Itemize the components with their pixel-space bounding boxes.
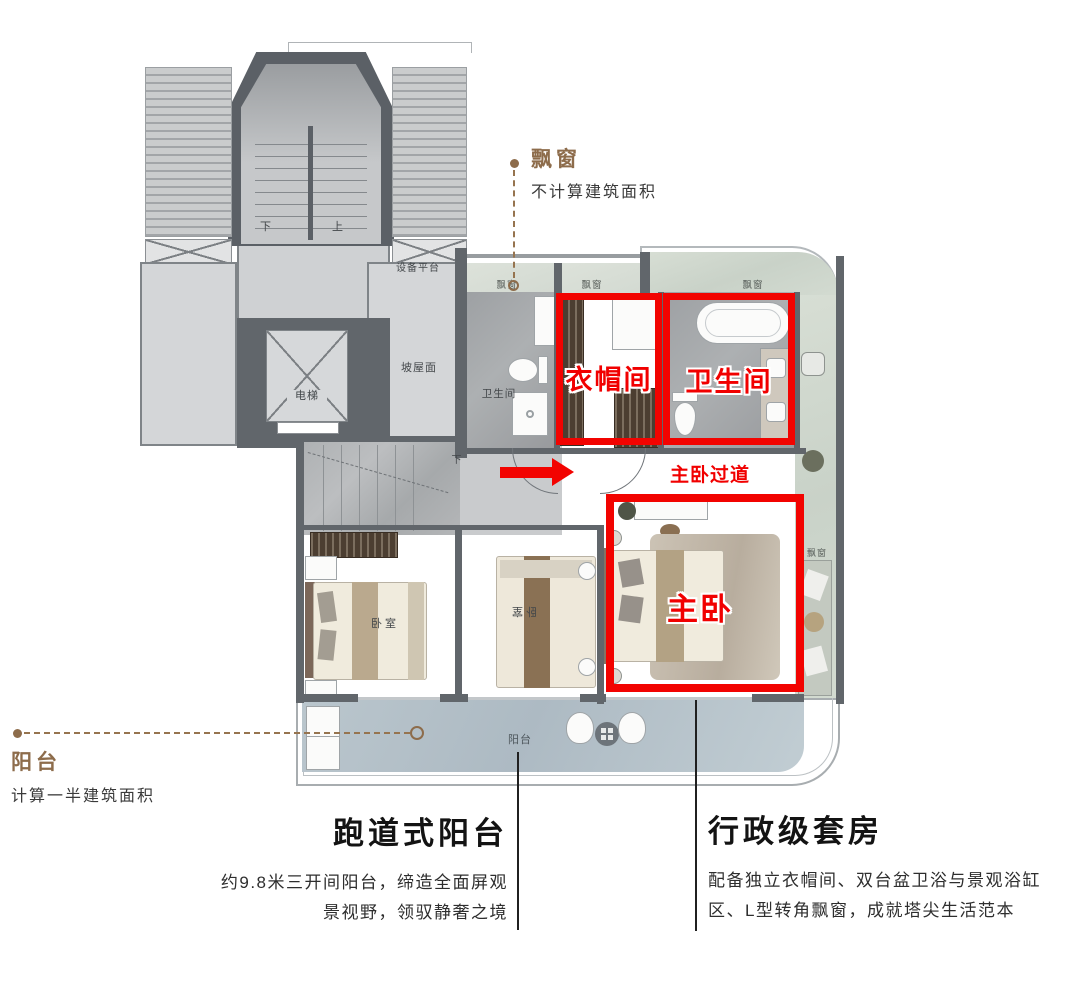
floor-plan-page: 下 上 设备平台 坡屋面 电梯	[0, 0, 1080, 998]
cloakroom-label: 衣帽间	[558, 358, 660, 397]
feature-executive-suite: 行政级套房 配备独立衣帽间、双台盆卫浴与景观浴缸 区、L型转角飘窗，成就塔尖生活…	[708, 812, 1048, 926]
shower-drain	[526, 410, 534, 418]
bay-callout-line	[513, 170, 515, 278]
left-room	[140, 262, 237, 446]
feature-executive-suite-title: 行政级套房	[708, 812, 1048, 852]
inner-stair-treads	[306, 445, 418, 531]
balcony-cabinet-line	[306, 736, 340, 737]
wall-bedroom-top	[302, 525, 604, 530]
wall-top-thin	[463, 254, 643, 258]
toilet-small-bowl	[508, 358, 538, 382]
wall-bottom-seg-1	[302, 694, 358, 702]
feature-runway-balcony-line-2: 景视野，领驭静奢之境	[188, 898, 508, 928]
stair-tower-bracket	[288, 42, 472, 53]
small-bathroom-label: 卫生间	[476, 388, 522, 401]
leader-line-balcony	[517, 752, 519, 930]
wall-bottom-seg-2	[440, 694, 468, 702]
stair-down-label: 下	[258, 221, 274, 234]
bedroom-left-label: 卧室	[366, 618, 404, 631]
wall-right-outer	[836, 256, 844, 704]
slider-door-1	[358, 697, 440, 700]
vanity-small	[534, 296, 556, 346]
wall-unit-left	[296, 441, 304, 703]
balcony-callout-subtitle: 计算一半建筑面积	[11, 782, 155, 806]
door-gap-3	[352, 526, 396, 530]
wall-bottom-seg-3	[580, 694, 606, 702]
balcony-callout-line	[24, 732, 410, 734]
door-gap-2	[668, 449, 702, 454]
bay-window-label-2: 飘窗	[572, 280, 612, 291]
corridor-arrow	[500, 467, 552, 478]
feature-executive-suite-line-2: 区、L型转角飘窗，成就塔尖生活范本	[708, 896, 1048, 926]
roof-hatch-left	[145, 67, 232, 237]
pouf-1	[578, 562, 596, 580]
corridor-arrow-head	[552, 458, 574, 486]
equipment-platform-label: 设备平台	[378, 263, 458, 275]
sloped-roof-label: 坡屋面	[390, 362, 448, 375]
feature-runway-balcony: 跑道式阳台 约9.8米三开间阳台，缔造全面屏观 景视野，领驭静奢之境	[188, 814, 508, 928]
balcony-callout-dot	[13, 729, 22, 738]
balcony-callout-ring	[410, 726, 424, 740]
toilet-small-tank	[538, 356, 548, 384]
wall-bedroom-divider-1	[455, 530, 462, 702]
slider-door-2	[468, 697, 580, 700]
bedroom-mid-label: 卧室	[504, 604, 542, 617]
corridor-label: 主卧过道	[650, 460, 770, 487]
bay-window-label-4: 飘窗	[799, 548, 835, 559]
master-bathroom-label: 卫生间	[665, 360, 793, 399]
master-bedroom-label: 主卧	[640, 584, 760, 629]
balcony-chair-1	[566, 712, 594, 744]
balcony-callout-title: 阳台	[11, 746, 61, 776]
slider-door-3	[606, 697, 752, 700]
wardrobe-left-bedroom	[310, 532, 398, 558]
bay-shelf-item-2	[804, 612, 824, 632]
bay-callout-ring	[508, 280, 519, 291]
stair-spine-wall	[308, 126, 313, 240]
bay-callout-subtitle: 不计算建筑面积	[531, 178, 657, 202]
door-gap-4	[500, 526, 544, 530]
balcony-chair-2	[618, 712, 646, 744]
bay-callout-dot	[510, 159, 519, 168]
wall-bedroom-divider-2	[597, 528, 604, 704]
feature-executive-suite-line-1: 配备独立衣帽间、双台盆卫浴与景观浴缸	[708, 866, 1048, 896]
balcony-cabinet	[306, 706, 340, 770]
feature-runway-balcony-line-1: 约9.8米三开间阳台，缔造全面屏观	[188, 868, 508, 898]
inner-stair-down-label: 下	[450, 455, 464, 467]
nightstand-1	[305, 556, 337, 580]
leader-line-suite	[695, 700, 697, 931]
roof-hatch-right	[392, 67, 467, 237]
wall-bay-mullion-2	[640, 252, 650, 298]
bay-window-label-3: 飘窗	[733, 280, 773, 291]
wall-bottom-seg-4	[752, 694, 804, 702]
elevator-label: 电梯	[287, 390, 327, 403]
bay-window-label-1: 飘窗	[487, 280, 527, 291]
balcony-floor	[302, 700, 804, 772]
bed-left-pillow-2	[317, 629, 336, 661]
wall-stair-top	[296, 436, 466, 442]
feature-runway-balcony-title: 跑道式阳台	[188, 814, 508, 854]
elevator-car	[266, 330, 348, 422]
bay-ornament	[801, 352, 825, 376]
balcony-label: 阳台	[504, 734, 536, 747]
bed-left-throw	[408, 582, 424, 680]
balcony-table-top	[601, 728, 613, 740]
wall-unit-topleft	[455, 248, 467, 458]
pouf-2	[578, 658, 596, 676]
bay-callout-title: 飘窗	[531, 143, 581, 173]
stair-up-label: 上	[330, 221, 346, 234]
elevator-door	[277, 422, 339, 434]
